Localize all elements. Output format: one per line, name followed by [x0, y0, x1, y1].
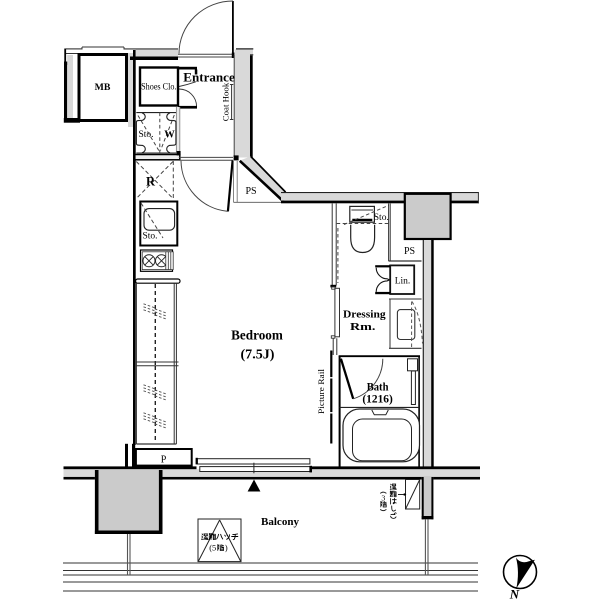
- svg-text:N: N: [509, 587, 520, 599]
- svg-text:Sto.: Sto.: [142, 232, 157, 242]
- svg-text:Picture Rail: Picture Rail: [316, 368, 326, 414]
- svg-text:Entrance: Entrance: [183, 71, 235, 85]
- svg-text:Dressing: Dressing: [343, 308, 386, 320]
- svg-text:(7.5J): (7.5J): [241, 348, 275, 363]
- svg-text:Shoes Clo.: Shoes Clo.: [141, 82, 176, 92]
- svg-text:Sto.: Sto.: [374, 213, 389, 223]
- svg-text:Coat Hook: Coat Hook: [221, 82, 231, 121]
- svg-text:(5: (5: [209, 544, 216, 553]
- svg-text:Bath: Bath: [367, 381, 389, 393]
- svg-text:(1216): (1216): [362, 394, 393, 406]
- svg-text:Lin.: Lin.: [395, 277, 411, 287]
- svg-text:Bedroom: Bedroom: [231, 329, 283, 344]
- svg-text:MB: MB: [95, 82, 111, 93]
- svg-text:Rm.: Rm.: [350, 321, 376, 333]
- svg-text:): ): [225, 544, 228, 553]
- svg-text:R: R: [146, 175, 156, 189]
- svg-text:PS: PS: [245, 186, 256, 197]
- svg-text:Balcony: Balcony: [261, 516, 299, 528]
- svg-text:PS: PS: [404, 246, 415, 257]
- svg-text:W: W: [164, 130, 175, 141]
- svg-text:P: P: [161, 454, 167, 465]
- svg-text:Sto.: Sto.: [138, 130, 153, 140]
